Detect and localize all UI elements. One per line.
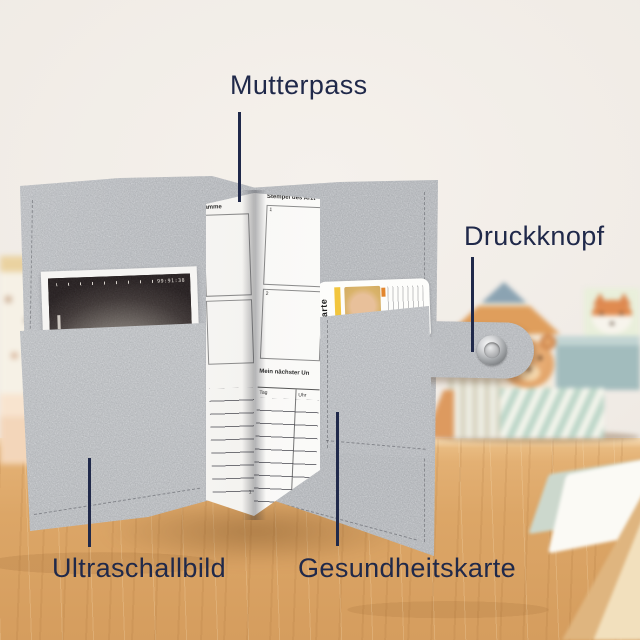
appointment-col-time: Uhr [298, 392, 306, 398]
pointer-line-druckknopf [471, 257, 474, 352]
page-right-appointment-heading: Mein nächster Un [259, 369, 309, 377]
pointer-line-gesundheitskarte [336, 412, 339, 546]
booklet-spine-shadow [242, 190, 266, 520]
ultrasound-timestamp: 99:91:38 [157, 278, 185, 285]
page-right-box2-label: 2 [266, 291, 269, 297]
label-druckknopf: Druckknopf [464, 221, 605, 252]
stitch-seam [326, 440, 426, 450]
ultrasound-marker [57, 315, 60, 329]
snap-button [477, 335, 508, 366]
page-right-box1: 1 [263, 205, 326, 288]
page-right-box1-label: 1 [269, 207, 272, 213]
closure-tab [424, 321, 535, 379]
label-gesundheitskarte: Gesundheitskarte [298, 553, 516, 584]
ultrasound-scale-ticks [56, 280, 160, 287]
page-right-box2: 2 [260, 289, 323, 362]
pointer-line-mutterpass [238, 112, 241, 202]
label-ultraschallbild: Ultraschallbild [52, 553, 226, 584]
product-photo-scene: 99:91:38 karte bamme 1 [0, 0, 640, 640]
label-mutterpass: Mutterpass [230, 70, 368, 101]
health-card-accent [381, 288, 385, 297]
pointer-line-ultraschallbild [88, 458, 91, 547]
stitch-seam [327, 320, 328, 448]
